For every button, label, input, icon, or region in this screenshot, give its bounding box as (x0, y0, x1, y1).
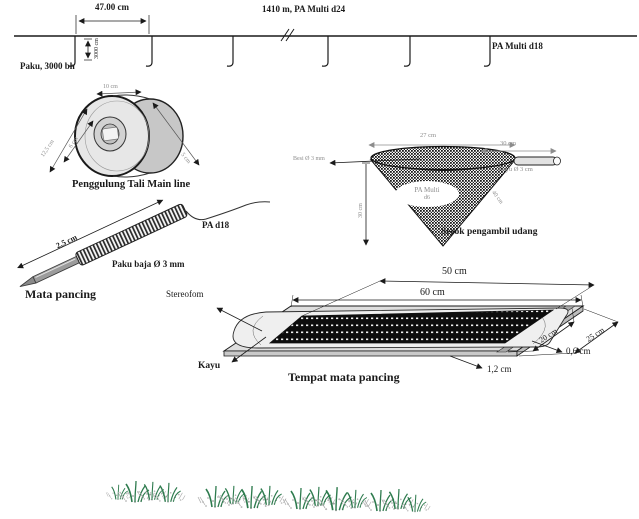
tray-dim-foam-thickness: 0,6 cm (566, 347, 591, 356)
scoop-dim-mouth: 27 cm (420, 133, 436, 140)
hook-nail-label: Paku baja Ø 3 mm (112, 260, 185, 269)
tray-board-label: Kayu (198, 362, 220, 372)
scoop-handle-label: Kayu Ø 3 cm (498, 167, 533, 174)
tray-dim-inner-length: 50 cm (442, 267, 467, 277)
scoop-net-label-2: d6 (402, 195, 452, 201)
mainline-drawing (14, 15, 637, 66)
line-break-symbol (281, 29, 294, 41)
scoop-dim-depth: 30 cm (358, 203, 364, 218)
tray-dim-board-thickness: 1,2 cm (487, 365, 512, 374)
hook-drawing (12, 193, 270, 293)
dim-label-spacing: 47.00 cm (76, 3, 148, 12)
mainline-label: 1410 m, PA Multi d24 (262, 5, 345, 14)
scoop-frame-label: Besi Ø 3 mm (293, 156, 325, 162)
spool-dim-width: 10 cm (103, 84, 118, 90)
diagram-line-art (0, 0, 639, 519)
tray-caption: Tempat mata pancing (288, 371, 400, 383)
branchline-label: PA Multi d18 (492, 42, 543, 51)
scoop-caption: Serok pengambil udang (441, 228, 537, 238)
grass-illustration (106, 481, 430, 512)
spool-caption: Penggulung Tali Main line (72, 180, 190, 191)
technical-diagram-page: 47.00 cm 1410 m, PA Multi d24 PA Multi d… (0, 0, 639, 519)
scoop-dim-handle: 30 cm (500, 141, 516, 148)
tray-foam-label: Stereofom (166, 290, 204, 299)
hook-line-label: PA d18 (202, 221, 229, 230)
dim-label-depth: 3000 cm (94, 38, 100, 59)
tray-drawing (217, 281, 618, 368)
scoop-net-label-1: PA Multi (402, 187, 452, 194)
tray-dim-outer-length: 60 cm (420, 288, 445, 298)
spool-drawing (50, 92, 199, 177)
nails-label: Paku, 3000 bh (20, 62, 75, 71)
hook-caption: Mata pancing (25, 288, 96, 300)
